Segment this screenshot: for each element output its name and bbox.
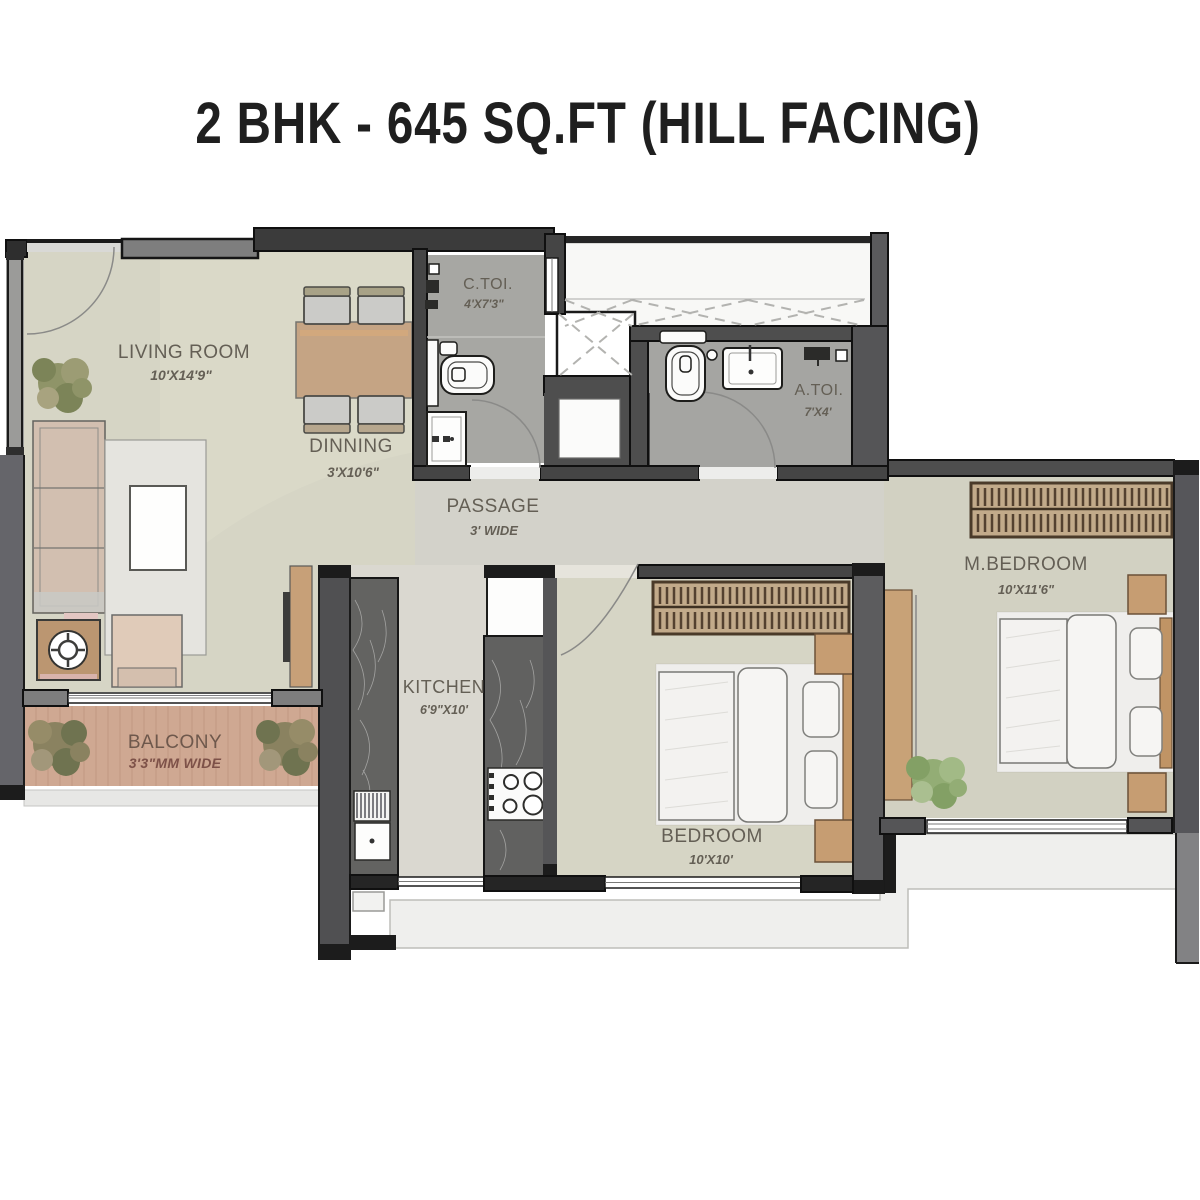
svg-text:10'X14'9": 10'X14'9": [150, 367, 212, 383]
svg-text:7'X4': 7'X4': [804, 405, 832, 419]
svg-text:BEDROOM: BEDROOM: [661, 826, 763, 847]
svg-text:4'X7'3": 4'X7'3": [463, 297, 504, 311]
svg-text:LIVING ROOM: LIVING ROOM: [118, 342, 250, 363]
svg-text:3'X10'6": 3'X10'6": [327, 465, 379, 480]
svg-text:BALCONY: BALCONY: [128, 732, 222, 753]
svg-text:10'X10': 10'X10': [689, 852, 734, 867]
svg-text:2 BHK - 645 SQ.FT (HILL FACING: 2 BHK - 645 SQ.FT (HILL FACING): [195, 92, 980, 157]
svg-text:PASSAGE: PASSAGE: [447, 496, 540, 517]
svg-text:A.TOI.: A.TOI.: [795, 382, 844, 399]
svg-text:C.TOI.: C.TOI.: [463, 276, 513, 293]
svg-text:3' WIDE: 3' WIDE: [470, 523, 518, 538]
svg-text:DINNING: DINNING: [309, 436, 393, 457]
svg-text:3'3"MM WIDE: 3'3"MM WIDE: [129, 755, 222, 771]
svg-text:10'X11'6": 10'X11'6": [998, 582, 1055, 597]
svg-text:KITCHEN: KITCHEN: [403, 677, 486, 697]
svg-text:M.BEDROOM: M.BEDROOM: [964, 554, 1088, 575]
svg-text:6'9"X10': 6'9"X10': [420, 703, 469, 717]
